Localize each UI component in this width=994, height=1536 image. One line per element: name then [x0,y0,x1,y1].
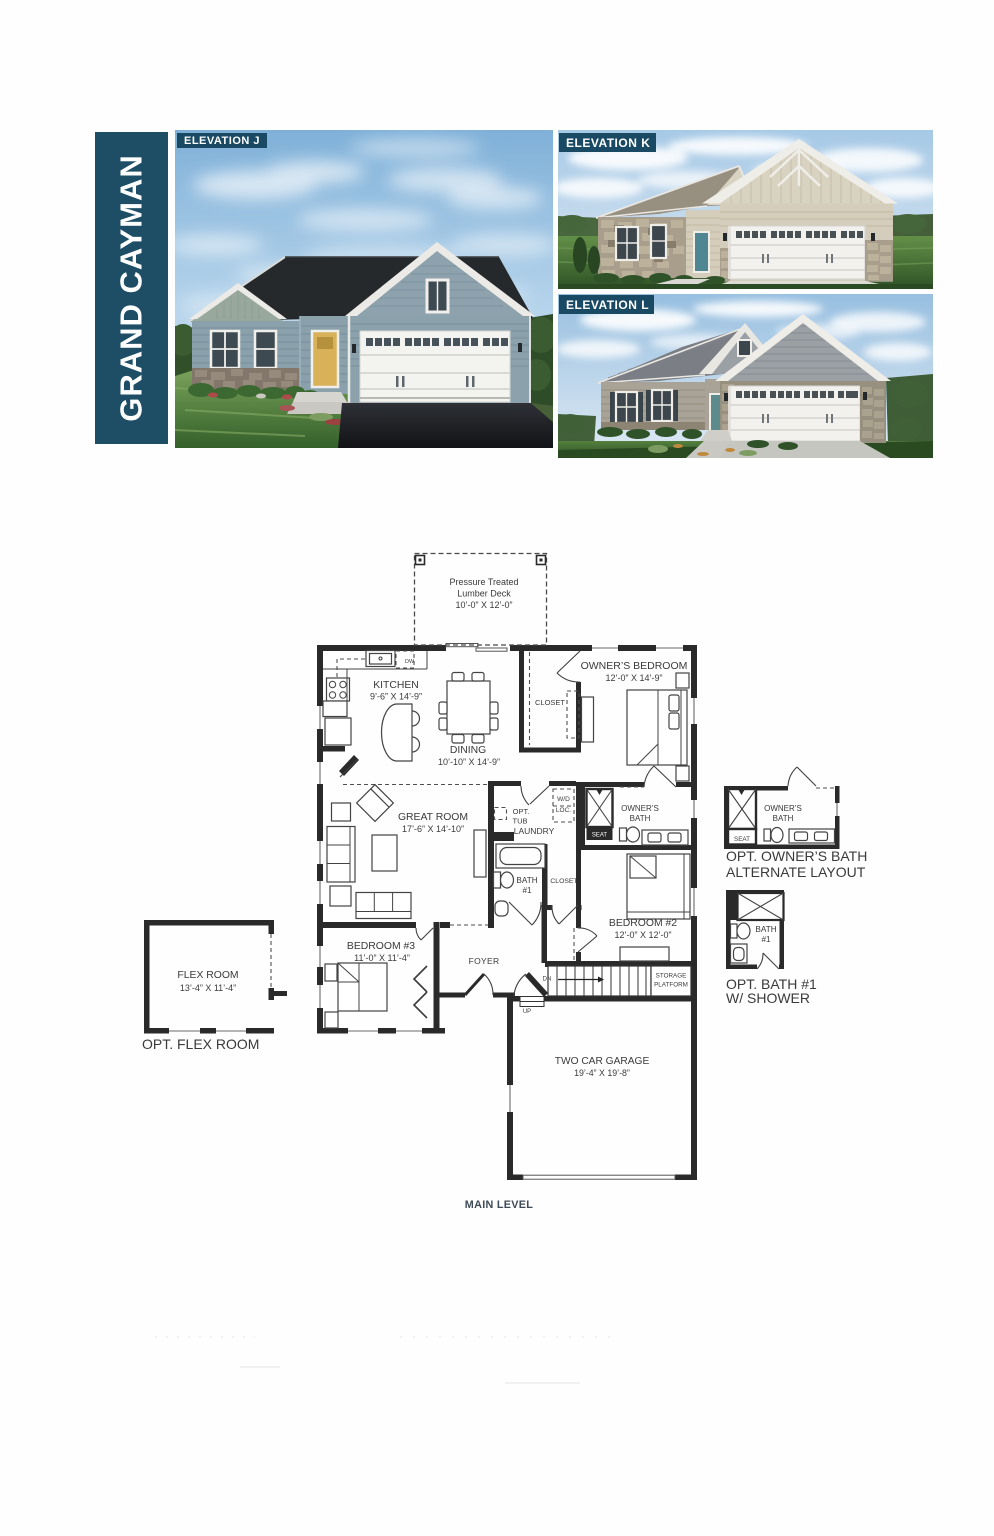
svg-text:BATH: BATH [630,814,651,823]
svg-text:OWNER’S: OWNER’S [764,804,802,813]
svg-text:13’-4” X 11’-4”: 13’-4” X 11’-4” [180,983,236,993]
svg-text:TWO CAR GARAGE: TWO CAR GARAGE [555,1056,650,1067]
svg-text:GREAT ROOM: GREAT ROOM [398,812,468,823]
svg-text:SEAT: SEAT [592,833,608,839]
svg-text:12’-0” X 14’-9”: 12’-0” X 14’-9” [605,673,662,683]
svg-text:LAUNDRY: LAUNDRY [514,826,555,836]
svg-text:#1: #1 [761,935,771,944]
svg-text:DW: DW [405,659,415,665]
svg-text:BATH: BATH [516,876,537,885]
svg-text:CLOSET: CLOSET [550,878,577,885]
svg-text:BATH: BATH [755,925,776,934]
svg-text:9’-6” X 14’-9”: 9’-6” X 14’-9” [370,692,422,702]
svg-text:OPT.: OPT. [513,807,530,816]
svg-text:#1: #1 [522,886,532,895]
svg-text:UP: UP [523,1009,531,1015]
svg-text:MAIN LEVEL: MAIN LEVEL [465,1199,533,1211]
svg-text:12’-0” X 12’-0”: 12’-0” X 12’-0” [614,930,671,940]
svg-text:ALTERNATE LAYOUT: ALTERNATE LAYOUT [726,864,866,880]
svg-text:FLEX ROOM: FLEX ROOM [177,970,238,981]
svg-text:OWNER’S BEDROOM: OWNER’S BEDROOM [581,660,688,672]
svg-text:SEAT: SEAT [734,836,750,843]
svg-text:BATH: BATH [773,814,794,823]
svg-text:W/D: W/D [557,796,570,803]
svg-text:DN: DN [543,977,552,983]
svg-text:19’-4” X 19’-8”: 19’-4” X 19’-8” [574,1068,630,1078]
svg-text:OWNER’S: OWNER’S [621,804,659,813]
svg-text:KITCHEN: KITCHEN [373,680,419,691]
svg-text:11’-0” X 11’-4”: 11’-0” X 11’-4” [354,953,410,963]
svg-text:TUB: TUB [513,817,528,826]
svg-text:10’-0” X 12’-0”: 10’-0” X 12’-0” [455,600,512,610]
svg-text:LOC.: LOC. [556,807,571,814]
svg-text:OPT. OWNER’S BATH: OPT. OWNER’S BATH [726,848,867,864]
svg-text:BEDROOM #2: BEDROOM #2 [609,918,677,929]
svg-text:W/ SHOWER: W/ SHOWER [726,990,810,1006]
svg-text:DINING: DINING [450,745,486,756]
svg-text:CLOSET: CLOSET [535,698,565,707]
svg-text:STORAGE: STORAGE [656,973,687,980]
svg-text:PLATFORM: PLATFORM [654,982,688,989]
svg-text:Lumber Deck: Lumber Deck [457,589,511,599]
svg-text:OPT. FLEX ROOM: OPT. FLEX ROOM [142,1036,259,1052]
svg-text:FOYER: FOYER [469,956,500,966]
svg-text:Pressure Treated: Pressure Treated [449,577,518,587]
svg-text:BEDROOM #3: BEDROOM #3 [347,941,415,952]
svg-text:10’-10” X 14’-9”: 10’-10” X 14’-9” [438,757,500,767]
svg-text:17’-6” X 14’-10”: 17’-6” X 14’-10” [402,824,464,834]
